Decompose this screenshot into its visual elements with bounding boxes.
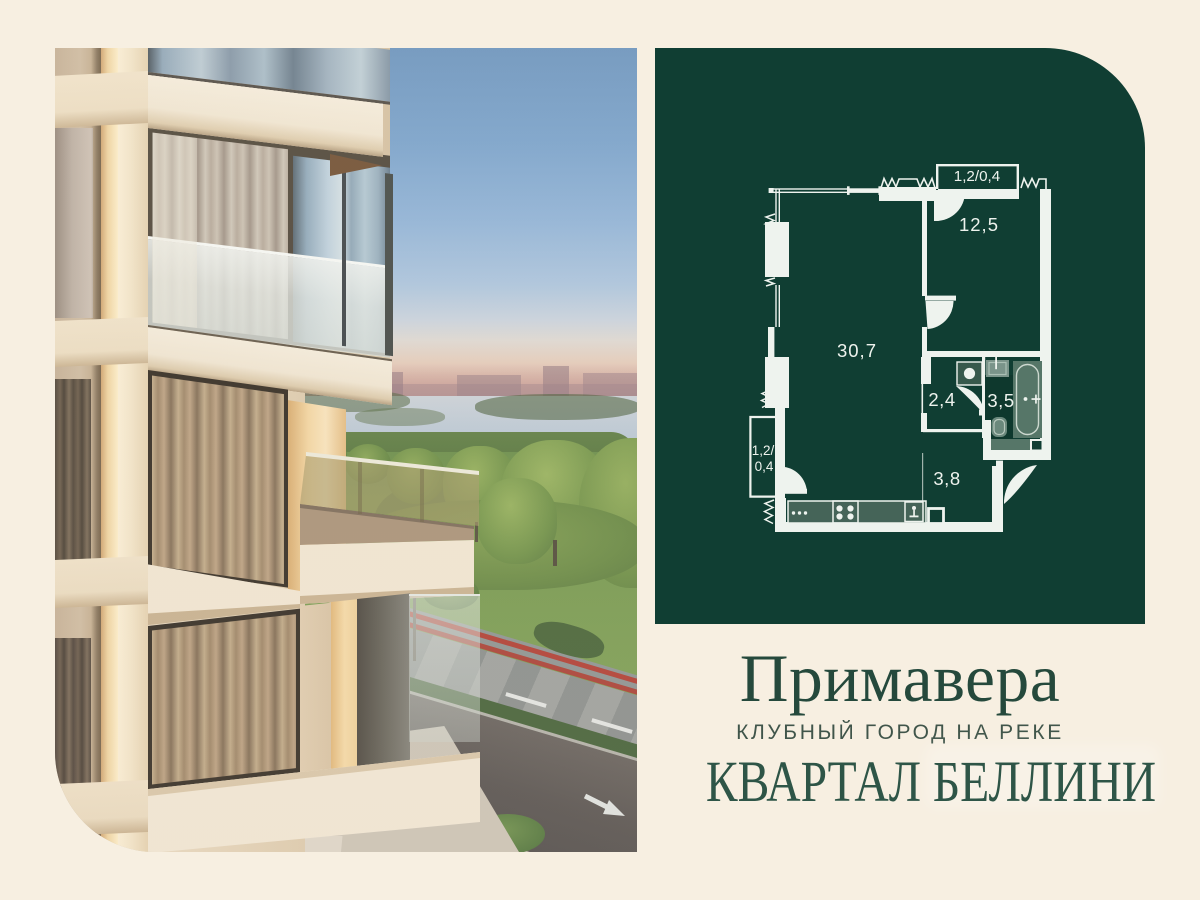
svg-text:12,5: 12,5 bbox=[959, 214, 999, 235]
svg-text:2,4: 2,4 bbox=[928, 389, 955, 410]
svg-text:30,7: 30,7 bbox=[837, 340, 877, 361]
svg-text:3,5: 3,5 bbox=[987, 390, 1014, 411]
svg-text:3,8: 3,8 bbox=[933, 468, 960, 489]
svg-text:1,2/0,4: 1,2/0,4 bbox=[954, 168, 1000, 185]
svg-text:0,4: 0,4 bbox=[755, 459, 774, 474]
svg-text:1,2/: 1,2/ bbox=[752, 443, 775, 458]
